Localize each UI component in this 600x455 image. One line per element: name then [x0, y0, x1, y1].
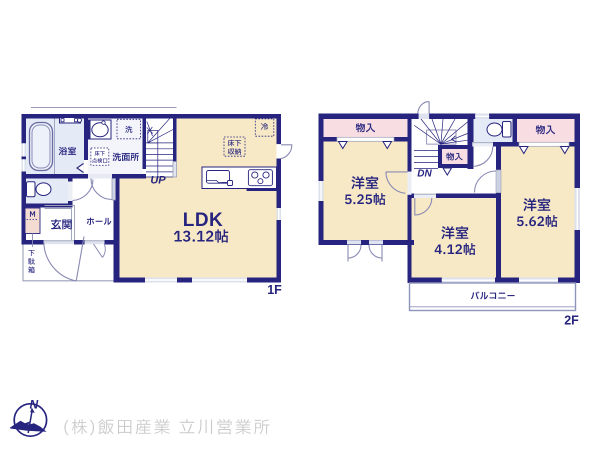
svg-text:1F: 1F [267, 283, 282, 297]
svg-text:N: N [29, 398, 38, 412]
svg-text:2F: 2F [564, 314, 579, 328]
svg-text:UP: UP [150, 175, 166, 187]
svg-text:LDK: LDK [183, 210, 224, 231]
svg-text:DN: DN [417, 169, 432, 180]
